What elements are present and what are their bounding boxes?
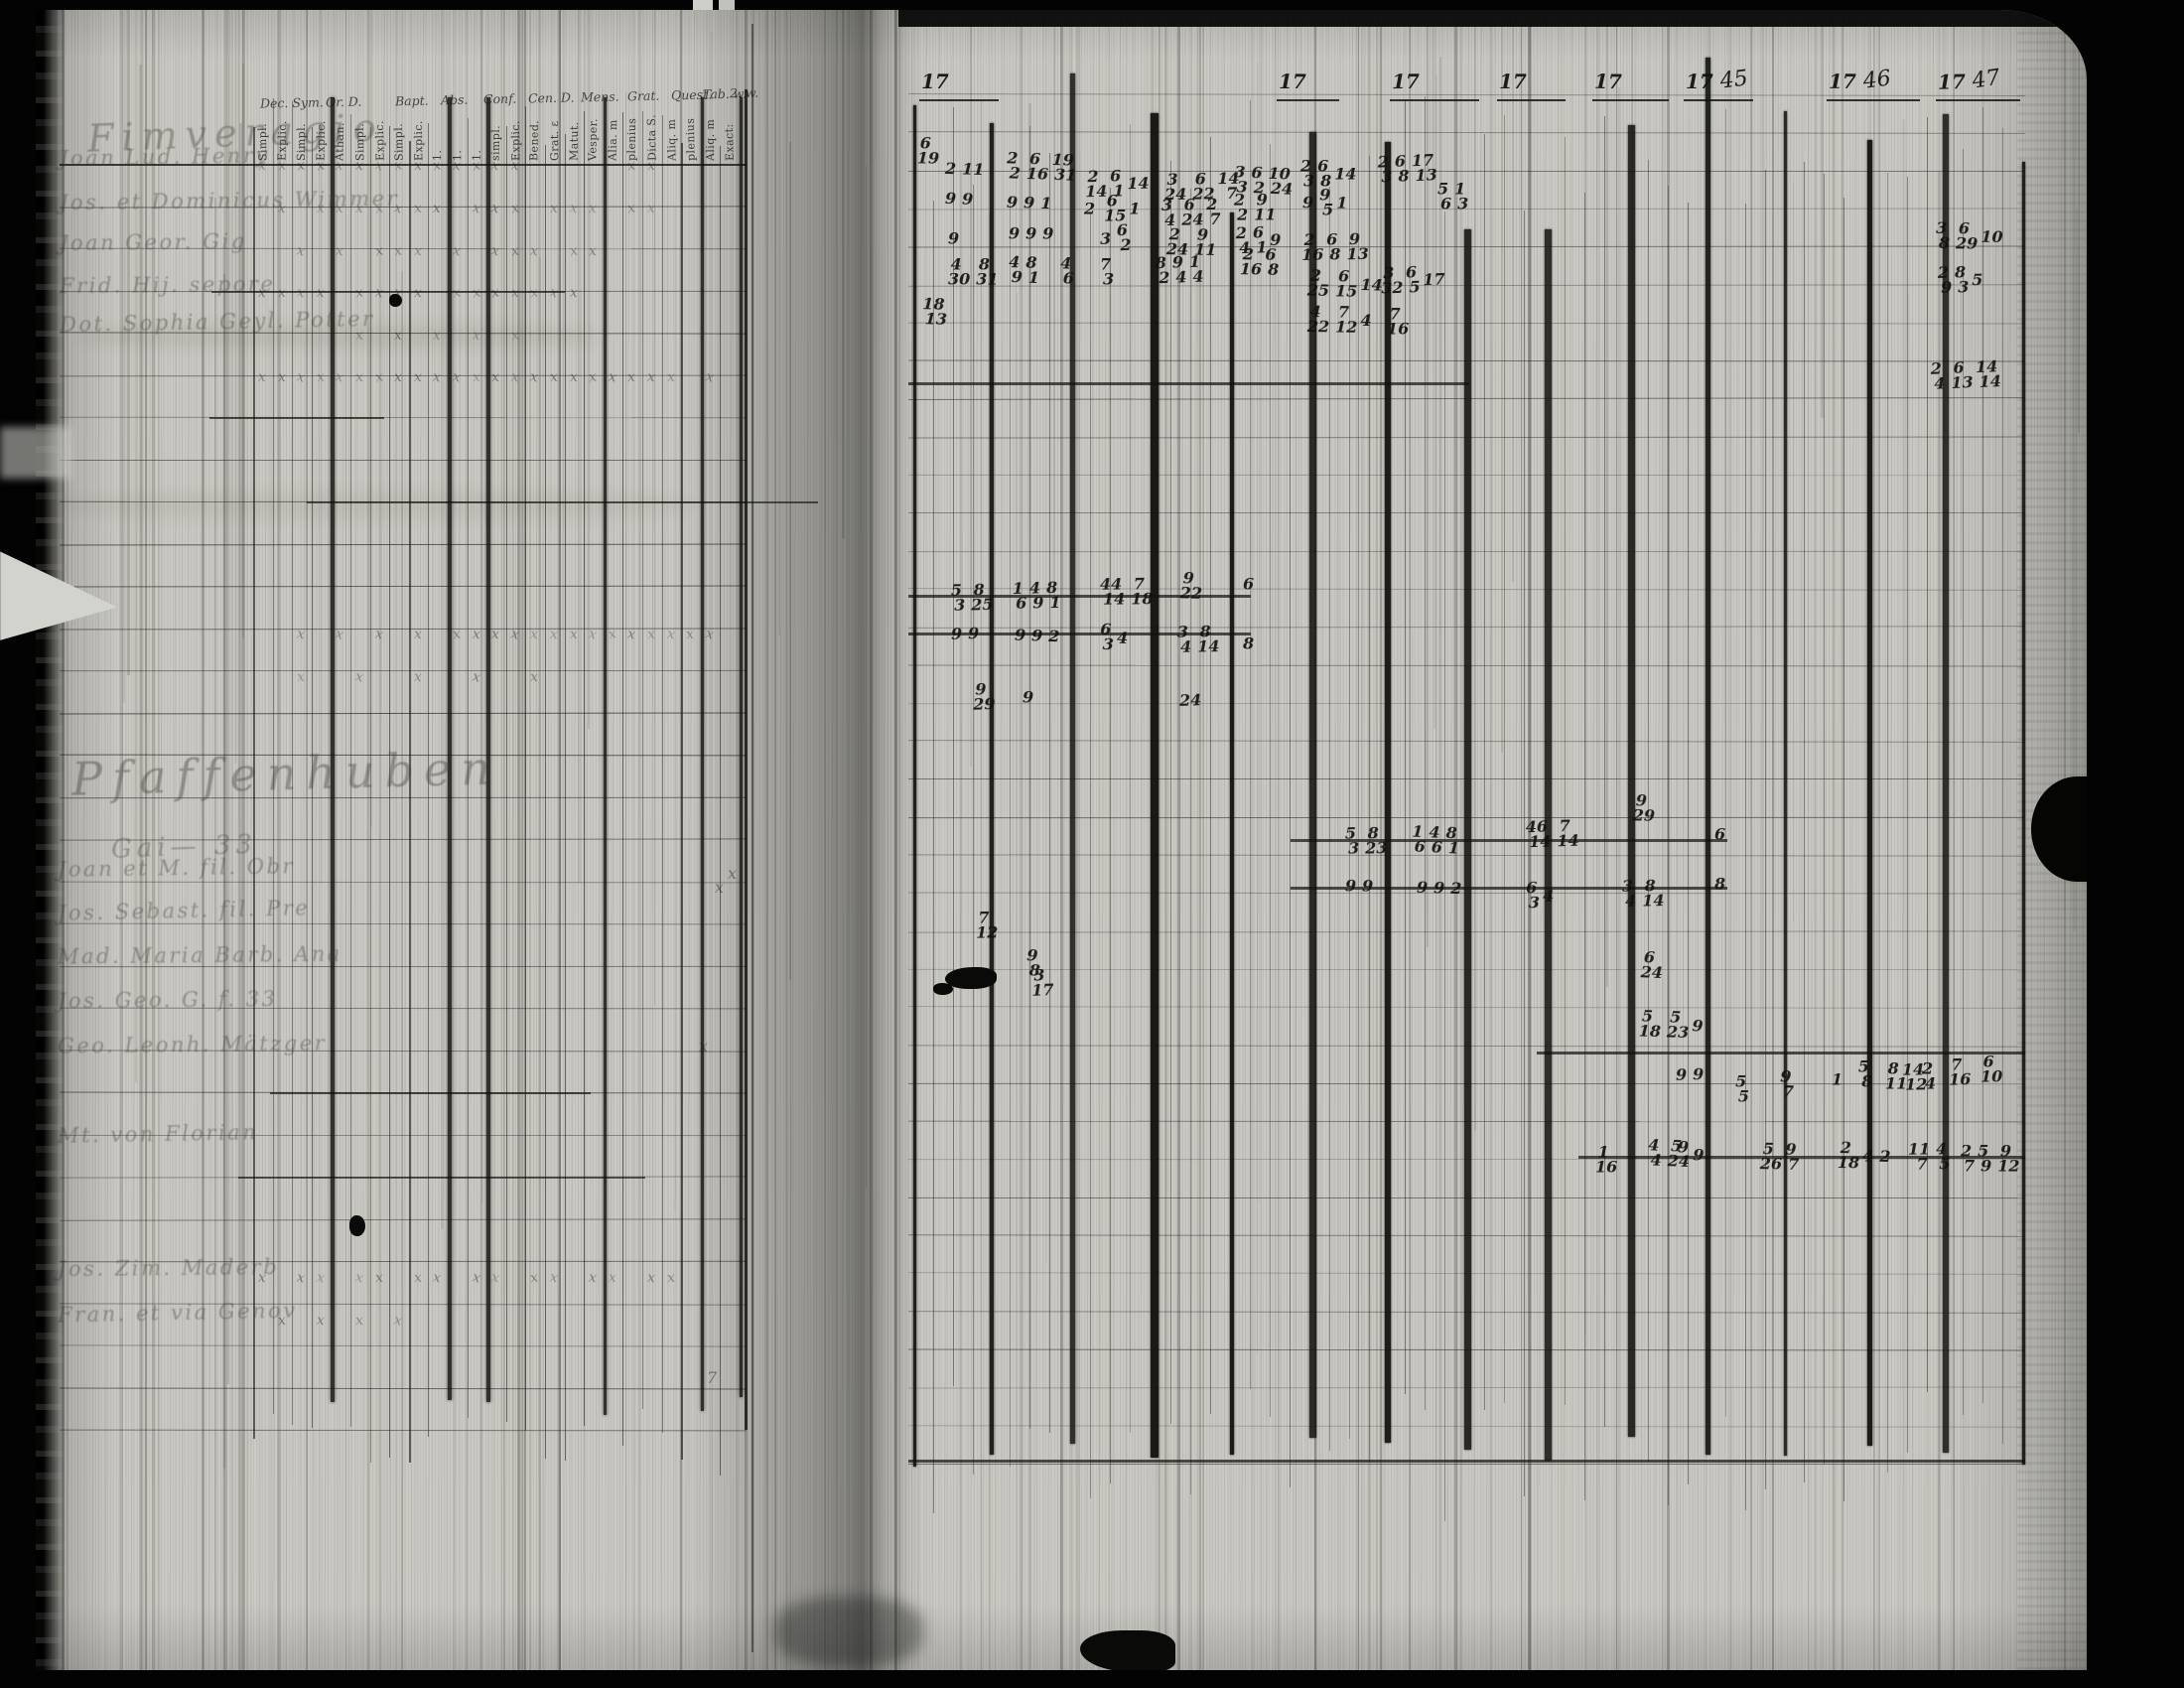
paper-streak <box>785 10 787 1670</box>
stacked-number: 518 <box>1636 1009 1659 1039</box>
right-grid-vline-thin <box>1110 188 1111 1483</box>
tally-cluster: 634 <box>1526 881 1555 911</box>
number: 1 <box>1832 1069 1843 1088</box>
right-grid-hline <box>908 1464 2025 1465</box>
check-x-mark: x <box>452 368 463 385</box>
handwritten-text: Joan Lud. Henry <box>60 143 270 170</box>
check-x-mark: x <box>354 668 365 685</box>
number: 9 <box>1015 626 1026 644</box>
right-grid-vline-thin <box>1982 107 1983 1402</box>
stacked-number: 117 <box>1908 1142 1931 1171</box>
check-x-mark: x <box>490 200 501 216</box>
left-grid-hline <box>60 881 747 883</box>
number: 8 <box>1714 874 1726 893</box>
check-x-mark: x <box>646 627 655 643</box>
left-grid-hline <box>60 374 747 376</box>
paper-streak <box>887 10 888 1670</box>
left-grid-hline-dark <box>209 417 384 419</box>
check-x-mark: x <box>510 158 520 175</box>
check-x-mark: x <box>626 627 636 643</box>
stacked-number: 24 <box>1922 1061 1933 1090</box>
paper-streak-dark <box>1953 10 1955 1670</box>
stacked-number: 216 <box>1237 247 1260 276</box>
check-x-mark: x <box>433 201 441 216</box>
number: 9 <box>1345 876 1356 895</box>
year-underline <box>1936 99 2020 101</box>
paper-streak <box>1512 10 1514 582</box>
tally-cluster: 362 <box>1099 223 1128 253</box>
year-underline <box>1684 99 1753 101</box>
stacked-number: 22 <box>1007 151 1019 180</box>
stacked-number: 81 <box>1445 826 1457 855</box>
paper-streak <box>652 10 653 1670</box>
check-x-mark: x <box>608 369 617 386</box>
stacked-number: 615 <box>1101 194 1123 222</box>
year-underline <box>1827 99 1920 101</box>
tally-cluster: 11745 <box>1908 1142 1948 1171</box>
year-header: 1747 <box>1938 69 2000 94</box>
stacked-number: 13 <box>1454 182 1465 211</box>
paper-streak <box>866 166 867 1188</box>
check-x-mark: x <box>549 369 558 386</box>
number: 9 <box>1692 1016 1704 1035</box>
column-label: Explic. <box>411 99 425 161</box>
ink-smudge <box>60 492 695 519</box>
paper-streak <box>1728 10 1731 1670</box>
check-x-mark: x <box>646 1270 655 1287</box>
stacked-number: 929 <box>1630 793 1653 823</box>
left-grid-vline <box>604 97 607 1415</box>
column-label: Explic. <box>508 99 522 161</box>
stacked-number: 1813 <box>921 297 944 327</box>
stacked-number: 68 <box>1317 160 1328 189</box>
handwritten-text: Mad. Maria Barb. Ana <box>58 942 342 969</box>
check-x-mark: x <box>589 243 598 259</box>
right-grid-vline-thin <box>1484 134 1485 1410</box>
right-grid-vline-thin <box>1804 162 1805 1482</box>
number: 2 <box>1450 879 1462 898</box>
paper-streak <box>824 10 826 1670</box>
check-x-mark: x <box>257 158 266 175</box>
year-printed: 17 <box>1392 70 1420 93</box>
check-x-mark: x <box>374 1270 383 1287</box>
check-x-mark: x <box>491 369 500 386</box>
paper-streak-dark <box>894 10 897 1670</box>
right-grid-vline-heavy <box>1230 212 1234 1454</box>
paper-streak <box>1337 169 1340 1670</box>
handwritten-text: Jos. Geo. G. f. 33 <box>58 987 278 1013</box>
number: 9 <box>951 625 963 643</box>
number: 11 <box>962 159 985 179</box>
column-label: Matut. <box>567 99 581 161</box>
stacked-number: 317 <box>1027 968 1050 998</box>
check-x-mark: x <box>316 285 325 301</box>
tally-cluster: 24 <box>1922 1061 1933 1090</box>
tally-cluster: 929 <box>1630 793 1653 823</box>
paper-streak <box>960 170 962 1670</box>
left-grid-vline <box>642 111 643 1409</box>
paper-streak-dark <box>870 10 873 1670</box>
left-grid-hline <box>60 543 747 545</box>
number: 9 <box>968 624 980 642</box>
paper-streak <box>1961 290 1962 619</box>
right-grid-vline-heavy <box>2022 162 2026 1465</box>
handwritten-text: Jos. et Dominicus Wimmer <box>60 187 399 214</box>
tally-cluster: 22911 <box>1234 193 1274 221</box>
ink-blot <box>945 967 997 989</box>
stacked-number: 913 <box>1343 232 1366 261</box>
number: 9 <box>948 228 959 247</box>
check-x-mark: x <box>355 1313 364 1329</box>
check-x-mark: x <box>335 626 345 642</box>
tally-cluster: 9 <box>948 228 959 247</box>
tally-cluster: 26151 <box>1084 194 1141 222</box>
right-grid-vline-thin <box>1049 153 1050 1433</box>
check-x-mark: x <box>472 369 480 385</box>
paper-streak <box>1833 10 1835 1670</box>
stacked-number: 1414 <box>1976 359 1998 389</box>
number: 4 <box>1360 311 1371 330</box>
year-hand-suffix: 46 <box>1861 67 1892 94</box>
check-x-mark: x <box>665 627 675 643</box>
column-label: simpl. <box>489 99 503 161</box>
year-printed: 17 <box>1938 70 1966 94</box>
stacked-number: 73 <box>1100 257 1111 286</box>
tally-cluster: 73 <box>1100 257 1111 286</box>
stacked-number: 16 <box>1013 582 1024 611</box>
stacked-number: 46 <box>1429 825 1440 854</box>
number: 9 <box>1025 223 1036 242</box>
left-grid-vline <box>681 143 683 1460</box>
left-grid-vline <box>622 112 623 1446</box>
stacked-number: 825 <box>968 583 991 612</box>
year-printed: 17 <box>1829 70 1856 93</box>
stacked-number: 97 <box>1785 1143 1797 1172</box>
stacked-number: 24 <box>1930 361 1942 390</box>
stacked-number: 34 <box>1177 626 1189 654</box>
check-x-mark: x <box>530 243 539 260</box>
paper-streak <box>512 249 514 1670</box>
stray-mark: x <box>699 1037 708 1055</box>
number: 2 <box>1048 627 1060 645</box>
stacked-number: 22 <box>1234 194 1245 222</box>
paper-streak <box>736 10 738 1670</box>
stacked-number: 1931 <box>1051 153 1074 183</box>
tally-cluster: 634 <box>1099 623 1128 652</box>
stacked-number: 62 <box>1117 223 1129 252</box>
right-grid-vline-thin <box>1130 124 1131 1432</box>
check-x-mark: x <box>296 285 306 302</box>
number: 2 <box>945 159 957 178</box>
year-header: 17 <box>1594 70 1622 94</box>
tally-cluster: 992 <box>1417 878 1462 898</box>
right-grid-vline-thin <box>1210 137 1211 1414</box>
paper-streak <box>2078 10 2080 433</box>
paper-streak <box>1815 10 1817 1670</box>
handwritten-text: Frid. Hij. sepore <box>60 272 276 298</box>
stacked-number: 53 <box>1345 827 1356 856</box>
check-x-mark: x <box>354 1269 365 1286</box>
tally-cluster: 55 <box>1735 1074 1747 1103</box>
left-grid-hline <box>60 459 747 460</box>
check-x-mark: x <box>666 1270 676 1287</box>
check-x-mark: x <box>355 369 364 385</box>
paper-streak-dark <box>1772 10 1774 1670</box>
stacked-number: 629 <box>1953 221 1976 250</box>
check-x-mark: x <box>569 369 577 385</box>
right-grid-vline-thin <box>1290 187 1291 1487</box>
paper-streak <box>1501 10 1502 753</box>
check-x-mark: x <box>608 1270 616 1286</box>
paper-streak <box>900 10 902 1670</box>
ink-blot <box>349 1215 365 1236</box>
number: 9 <box>1031 626 1043 644</box>
year-header: 17 <box>1499 70 1527 93</box>
stacked-number: 814 <box>1194 625 1217 653</box>
stacked-number: 45 <box>1936 1142 1947 1171</box>
right-grid-vline-heavy <box>1464 229 1471 1450</box>
stacked-number: 38 <box>1936 221 1948 250</box>
tally-cluster: 922 <box>1177 571 1200 601</box>
tally-cluster: 992 <box>1015 626 1060 646</box>
check-x-mark: x <box>355 158 363 174</box>
right-grid-vline-thin <box>1250 100 1251 1389</box>
paper-streak <box>1126 10 1127 1670</box>
stacked-number: 49 <box>1008 255 1020 284</box>
stray-mark: x <box>728 864 737 883</box>
check-x-mark: x <box>491 627 500 642</box>
right-grid-vline-thin <box>1927 117 1928 1392</box>
year-header: 1745 <box>1686 70 1748 94</box>
right-grid-vline-thin <box>1090 212 1091 1498</box>
column-label: Alia. m <box>606 99 619 161</box>
number: 4 <box>1117 629 1129 647</box>
right-grid-vline-thin <box>1524 211 1525 1497</box>
stacked-number: 616 <box>1024 152 1046 182</box>
year-underline <box>1497 99 1566 101</box>
tally-cluster: 6 <box>1714 824 1725 843</box>
check-x-mark: x <box>589 201 597 216</box>
check-x-mark: x <box>316 369 326 386</box>
stacked-number: 63 <box>1526 881 1538 910</box>
left-grid-hline <box>60 1387 747 1389</box>
check-x-mark: x <box>413 158 422 174</box>
stacked-number: 58 <box>1858 1059 1870 1088</box>
stacked-number: 81 <box>1046 581 1058 610</box>
check-x-mark: x <box>336 201 343 216</box>
number: 14 <box>1127 174 1150 194</box>
stacked-number: 49 <box>1029 581 1041 610</box>
column-label: Grat. ɛ <box>548 99 562 161</box>
check-x-mark: x <box>355 201 363 216</box>
right-grid-vline-thin <box>1565 137 1566 1405</box>
right-grid-vline-thin <box>1887 173 1888 1472</box>
check-x-mark: x <box>647 158 655 174</box>
year-hand-suffix: 47 <box>1971 66 2001 94</box>
stacked-number: 615 <box>1332 269 1355 299</box>
paper-streak-dark <box>1750 10 1751 1670</box>
tally-cluster: 716 <box>1946 1057 1969 1086</box>
tally-cluster: 5185239 <box>1636 1009 1705 1040</box>
right-grid-vline-thin <box>1369 156 1370 1463</box>
tally-cluster: 24 <box>1179 690 1202 710</box>
right-grid-vline-thin <box>1349 173 1350 1438</box>
stacked-number: 68 <box>1265 248 1277 277</box>
year-printed: 17 <box>1594 70 1622 94</box>
check-x-mark: x <box>453 158 462 174</box>
tally-cluster: 4414718 <box>1100 577 1151 606</box>
paper-streak <box>1278 10 1279 1670</box>
number: 9 <box>1417 878 1429 897</box>
paper-streak <box>480 10 481 1670</box>
number: 9 <box>1024 193 1035 211</box>
paper-streak <box>1808 10 1810 1670</box>
number: 9 <box>1693 1145 1705 1164</box>
left-grid-vline <box>720 146 721 1476</box>
stacked-number: 34 <box>1161 199 1173 227</box>
stacked-number: 1024 <box>1268 167 1291 197</box>
number: 9 <box>1302 193 1313 211</box>
tally-cluster: 317 <box>1027 968 1050 998</box>
tally-cluster: 164681 <box>1411 825 1457 856</box>
check-x-mark: x <box>511 285 519 301</box>
tally-cluster: 34814 <box>1622 879 1662 909</box>
stacked-number: 831 <box>973 258 995 287</box>
stacked-number: 46 <box>1060 256 1072 285</box>
check-x-mark: x <box>258 285 267 301</box>
paper-streak-dark <box>774 10 775 1670</box>
tally-cluster: 246131414 <box>1930 359 1998 391</box>
tally-cluster: 116 <box>1592 1145 1614 1174</box>
paper-streak <box>1474 10 1476 1131</box>
check-x-mark: x <box>568 242 579 259</box>
left-grid-hline <box>60 1218 747 1220</box>
paper-streak <box>538 10 540 1670</box>
gutter-bottom-shadow <box>774 1597 923 1666</box>
check-x-mark: x <box>568 200 579 216</box>
check-x-mark: x <box>296 1269 306 1286</box>
stacked-number: 624 <box>1178 198 1201 226</box>
paper-streak <box>1202 10 1204 1670</box>
stacked-number: 34 <box>1622 880 1634 909</box>
number: 10 <box>1980 227 2003 246</box>
tally-cluster: 610 <box>1978 1055 1999 1083</box>
stray-mark: 7 <box>707 1368 717 1387</box>
tally-cluster: 46 <box>1060 256 1072 285</box>
paper-streak <box>1079 24 1080 1670</box>
right-grid-vline-thin <box>933 201 934 1513</box>
column-label: Aliq. m <box>664 99 678 161</box>
number: 6 <box>1714 824 1725 843</box>
year-header: 17 <box>1392 70 1420 93</box>
bottom-ink-blot <box>1080 1630 1175 1670</box>
check-x-mark: x <box>296 627 306 643</box>
check-x-mark: x <box>510 369 520 386</box>
tally-cluster: 1813 <box>921 297 944 327</box>
tally-cluster: 445249 <box>1647 1138 1705 1169</box>
left-page-torn-edge <box>36 10 66 1670</box>
handwritten-text: Joan Geor. Gig <box>60 229 247 255</box>
stray-mark: x <box>715 878 724 897</box>
right-grid-hline-dark <box>908 1460 2025 1463</box>
check-x-mark: x <box>550 201 558 216</box>
right-grid-vline-thin <box>1170 161 1171 1424</box>
check-x-mark: x <box>414 669 422 685</box>
right-grid-vline-thin <box>1190 189 1191 1494</box>
stacked-number: 422 <box>1304 305 1327 334</box>
right-grid-vline-thin <box>1444 211 1445 1521</box>
check-x-mark: x <box>413 1270 422 1287</box>
check-x-mark: x <box>414 627 422 642</box>
year-header: 17 <box>1279 70 1306 93</box>
left-grid-vline <box>506 126 507 1422</box>
paper-streak <box>842 10 845 538</box>
check-x-mark: x <box>277 201 287 217</box>
paper-streak <box>501 10 502 1670</box>
column-label: Simpl. <box>392 99 406 161</box>
stacked-number: 23 <box>1300 160 1311 189</box>
paper-streak <box>836 10 838 1670</box>
handwritten-text: Joan et M. fil. Obr <box>58 854 295 882</box>
paper-streak <box>1439 57 1441 1670</box>
year-printed: 17 <box>921 70 949 93</box>
left-grid-vline <box>662 115 663 1432</box>
column-label: Aliq. m <box>704 99 717 161</box>
year-hand-suffix: 45 <box>1718 66 1749 93</box>
number: 9 <box>1042 224 1053 243</box>
check-x-mark: x <box>258 369 267 385</box>
check-x-mark: x <box>530 627 539 643</box>
stacked-number: 27 <box>1206 198 1218 226</box>
stacked-number: 624 <box>1637 950 1660 980</box>
tally-cluster: 21668913 <box>1298 232 1366 262</box>
right-grid-vline-thin <box>953 107 954 1386</box>
tally-cluster: 624 <box>1637 950 1660 980</box>
right-grid-vline-thin <box>1584 193 1585 1499</box>
tally-cluster: 4227124 <box>1304 305 1372 335</box>
check-x-mark: x <box>627 369 636 385</box>
right-grid-vline-heavy <box>1784 111 1787 1456</box>
stacked-number: 16 <box>1411 825 1423 854</box>
stacked-number: 95 <box>1319 188 1330 216</box>
check-x-mark: x <box>414 369 422 385</box>
check-x-mark: x <box>373 242 384 259</box>
year-header: 17 <box>921 70 949 93</box>
check-x-mark: x <box>336 243 344 259</box>
paper-streak-dark <box>517 10 519 1670</box>
stacked-number: 613 <box>1948 360 1971 390</box>
check-x-mark: x <box>588 368 599 385</box>
tally-cluster: 211 <box>945 159 985 179</box>
paper-streak <box>1928 10 1930 1670</box>
number: 17 <box>1423 269 1445 289</box>
tally-cluster: 6 <box>1243 574 1254 593</box>
check-x-mark: x <box>588 1270 597 1287</box>
ink-blot <box>933 983 953 995</box>
column-label: Exact: <box>723 99 737 161</box>
number: 2 <box>1879 1147 1890 1166</box>
tally-cluster: 3326517 <box>1378 264 1446 295</box>
paper-streak <box>1762 10 1764 1670</box>
tally-cluster: 52697 <box>1757 1142 1797 1172</box>
year-printed: 17 <box>1279 70 1306 93</box>
check-x-mark: x <box>666 369 674 385</box>
stacked-number: 53 <box>951 584 963 613</box>
stacked-number: 524 <box>1665 1139 1689 1169</box>
number: 24 <box>1179 690 1202 710</box>
stacked-number: 523 <box>1664 1010 1687 1040</box>
stacked-number: 922 <box>1177 571 1200 601</box>
